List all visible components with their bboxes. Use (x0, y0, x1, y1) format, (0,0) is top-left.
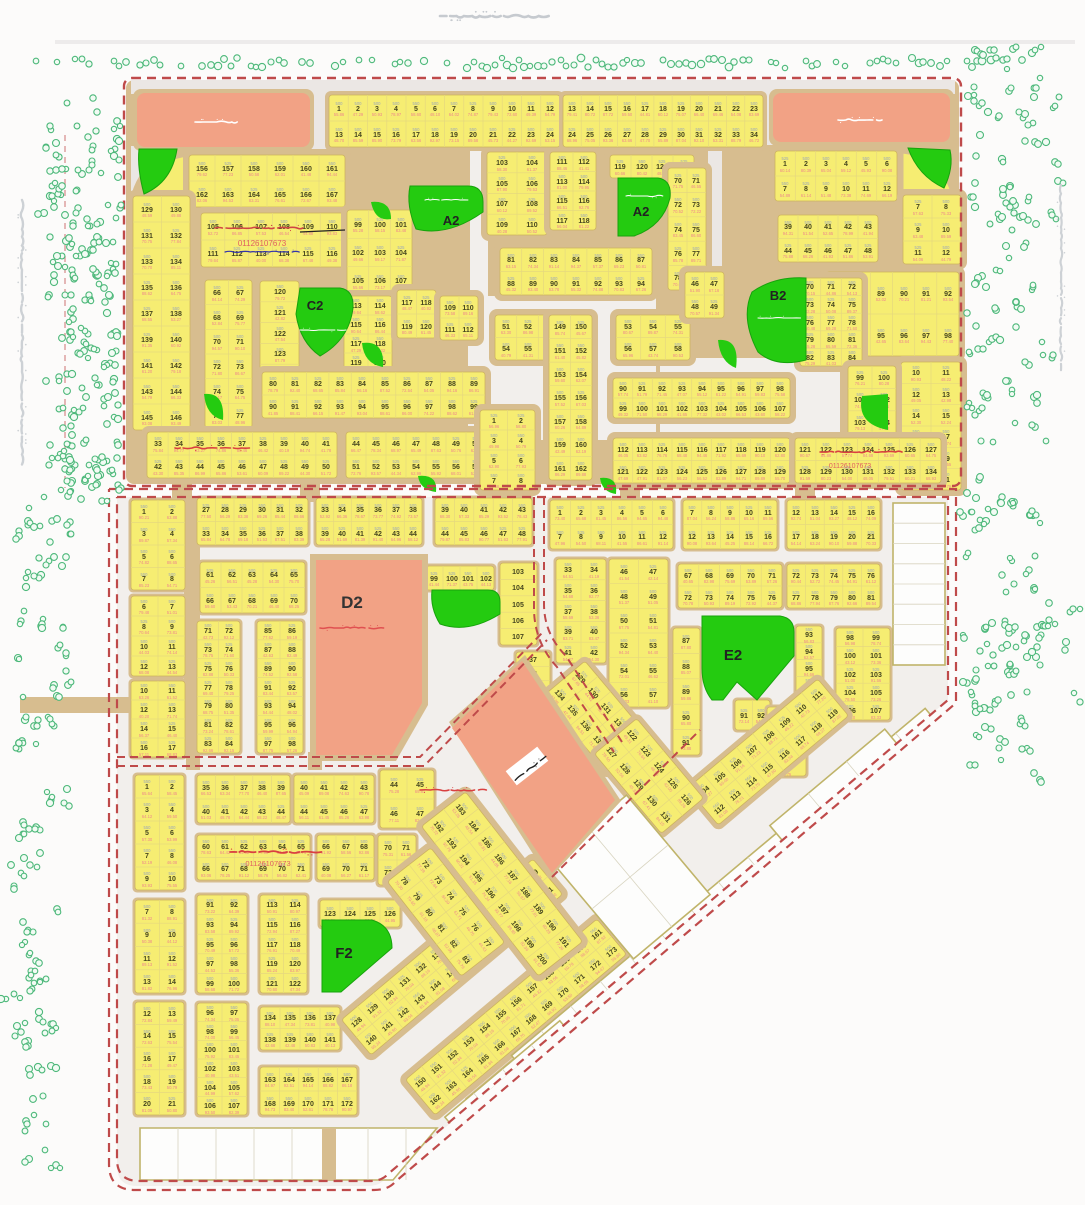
svg-text:45.25: 45.25 (725, 541, 736, 546)
svg-text:82.49: 82.49 (287, 653, 298, 658)
svg-text:68.29: 68.29 (657, 412, 668, 417)
svg-text:65.49: 65.49 (411, 448, 422, 453)
svg-text:128: 128 (754, 469, 766, 476)
svg-text:59.99: 59.99 (263, 729, 274, 734)
svg-text:81.21: 81.21 (921, 297, 932, 302)
svg-text:68.97: 68.97 (391, 448, 402, 453)
svg-text:81: 81 (848, 337, 856, 344)
svg-text:89.87: 89.87 (139, 538, 150, 543)
svg-text:125: 125 (364, 911, 376, 918)
svg-text:68.65: 68.65 (313, 388, 324, 393)
svg-text:91.35: 91.35 (142, 343, 153, 348)
svg-text:66.47: 66.47 (351, 448, 362, 453)
svg-text:51.72: 51.72 (321, 471, 332, 476)
svg-text:40.00: 40.00 (256, 258, 267, 263)
svg-text:41.31: 41.31 (523, 353, 534, 358)
svg-text:87: 87 (425, 381, 433, 388)
svg-text:41.54: 41.54 (619, 576, 630, 581)
svg-text:C2: C2 (307, 298, 324, 313)
svg-text:42: 42 (844, 224, 852, 231)
svg-text:94.46: 94.46 (697, 453, 708, 458)
svg-text:56.82: 56.82 (277, 873, 288, 878)
svg-text:4: 4 (170, 807, 174, 814)
svg-text:46: 46 (620, 569, 628, 576)
svg-text:77: 77 (692, 251, 700, 258)
svg-text:E2: E2 (724, 647, 742, 664)
svg-text:81.07: 81.07 (657, 476, 668, 481)
svg-text:54: 54 (502, 346, 510, 353)
svg-text:54: 54 (412, 464, 420, 471)
svg-text:94.65: 94.65 (637, 516, 648, 521)
svg-text:91.34: 91.34 (709, 311, 720, 316)
svg-text:89.08: 89.08 (319, 791, 330, 796)
svg-text:52.19: 52.19 (142, 860, 153, 865)
svg-text:89.54: 89.54 (866, 601, 877, 606)
svg-text:A2: A2 (443, 213, 460, 228)
svg-text:94.44: 94.44 (327, 172, 338, 177)
svg-text:51: 51 (352, 464, 360, 471)
svg-text:44.79: 44.79 (941, 257, 952, 262)
svg-text:48.70: 48.70 (334, 138, 345, 143)
svg-text:91.92: 91.92 (321, 850, 332, 855)
svg-text:84.91: 84.91 (847, 579, 858, 584)
svg-text:42.49: 42.49 (555, 449, 566, 454)
svg-text:28: 28 (221, 507, 229, 514)
svg-text:150: 150 (575, 324, 587, 331)
svg-text:13: 13 (168, 1011, 176, 1018)
svg-text:119: 119 (614, 164, 625, 171)
svg-text:56: 56 (452, 464, 460, 471)
svg-text:66.53: 66.53 (201, 791, 212, 796)
svg-text:84.14: 84.14 (212, 297, 223, 302)
svg-text:122: 122 (636, 469, 648, 476)
svg-text:80.67: 80.67 (623, 330, 634, 335)
svg-text:52.72: 52.72 (208, 231, 219, 236)
svg-text:29: 29 (239, 507, 247, 514)
svg-text:106: 106 (374, 278, 386, 285)
svg-text:60.12: 60.12 (658, 112, 669, 117)
svg-text:48.02: 48.02 (287, 710, 298, 715)
svg-text:45.28: 45.28 (247, 579, 258, 584)
svg-text:47: 47 (416, 811, 424, 818)
svg-text:68.86: 68.86 (791, 601, 802, 606)
svg-text:30: 30 (258, 507, 266, 514)
svg-text:57.72: 57.72 (229, 948, 240, 953)
svg-text:51.03: 51.03 (201, 815, 212, 820)
svg-text:40.08: 40.08 (321, 873, 332, 878)
svg-text:93: 93 (206, 922, 214, 929)
svg-text:58.15: 58.15 (375, 228, 386, 233)
svg-text:50.81: 50.81 (636, 264, 647, 269)
svg-text:64.42: 64.42 (220, 850, 231, 855)
svg-text:88.10: 88.10 (265, 1022, 276, 1027)
svg-text:86.44: 86.44 (375, 329, 386, 334)
svg-text:85.07: 85.07 (681, 670, 692, 675)
svg-text:86.91: 86.91 (469, 388, 480, 393)
svg-text:57.26: 57.26 (287, 748, 298, 753)
svg-text:73: 73 (236, 364, 244, 371)
svg-text:66.19: 66.19 (882, 193, 893, 198)
svg-text:50.91: 50.91 (267, 909, 278, 914)
svg-text:20: 20 (143, 1101, 151, 1108)
svg-text:78.79: 78.79 (268, 388, 279, 393)
svg-text:58.12: 58.12 (408, 537, 419, 542)
svg-text:82: 82 (225, 722, 233, 729)
svg-text:91.14: 91.14 (549, 264, 560, 269)
svg-text:71.74: 71.74 (167, 714, 178, 719)
svg-text:46.62: 46.62 (648, 674, 659, 679)
svg-text:10: 10 (912, 370, 920, 377)
svg-text:45.82: 45.82 (576, 355, 587, 360)
svg-text:46.05: 46.05 (618, 453, 629, 458)
svg-text:40.20: 40.20 (139, 714, 150, 719)
svg-text:70.75: 70.75 (142, 239, 153, 244)
svg-text:54.00: 54.00 (842, 476, 853, 481)
svg-text:79.25: 79.25 (224, 691, 235, 696)
svg-text:67.75: 67.75 (619, 625, 630, 630)
svg-text:56.16: 56.16 (357, 388, 368, 393)
svg-text:65: 65 (290, 572, 298, 579)
svg-text:127: 127 (735, 469, 747, 476)
svg-text:68.93: 68.93 (926, 476, 937, 481)
svg-text:58.56: 58.56 (341, 850, 352, 855)
svg-text:9: 9 (145, 876, 149, 883)
svg-text:85.90: 85.90 (372, 138, 383, 143)
svg-text:79.48: 79.48 (139, 610, 150, 615)
svg-text:93.49: 93.49 (171, 421, 182, 426)
svg-text:54.08: 54.08 (731, 112, 742, 117)
svg-text:51.86: 51.86 (843, 254, 854, 259)
svg-text:73.58: 73.58 (445, 311, 456, 316)
svg-text:89.58: 89.58 (468, 138, 479, 143)
svg-text:49: 49 (452, 441, 460, 448)
svg-text:75.58: 75.58 (775, 392, 786, 397)
svg-text:47: 47 (259, 464, 267, 471)
svg-text:82.39: 82.39 (229, 1110, 240, 1115)
svg-text:59.60: 59.60 (205, 604, 216, 609)
svg-text:78.78: 78.78 (323, 1107, 334, 1112)
svg-text:12: 12 (942, 250, 950, 257)
svg-text:71: 71 (236, 339, 244, 346)
svg-text:71: 71 (827, 284, 835, 291)
svg-text:114: 114 (289, 902, 300, 909)
svg-text:126: 126 (384, 911, 396, 918)
svg-text:93.40: 93.40 (528, 287, 539, 292)
svg-text:41.41: 41.41 (579, 166, 590, 171)
svg-text:71.28: 71.28 (142, 1063, 153, 1068)
svg-text:17: 17 (168, 1056, 176, 1063)
svg-text:46.55: 46.55 (691, 184, 702, 189)
svg-text:134: 134 (264, 1015, 276, 1022)
svg-text:11: 11 (638, 534, 646, 541)
svg-text:108: 108 (526, 201, 538, 208)
svg-text:59.88: 59.88 (847, 541, 858, 546)
svg-text:65.84: 65.84 (201, 537, 212, 542)
svg-text:49: 49 (710, 304, 718, 311)
svg-text:44.37: 44.37 (767, 601, 778, 606)
svg-text:73.38: 73.38 (841, 193, 852, 198)
svg-text:124: 124 (344, 911, 356, 918)
svg-text:37: 37 (238, 441, 246, 448)
svg-text:20: 20 (848, 534, 856, 541)
svg-text:92.10: 92.10 (694, 138, 705, 143)
svg-text:56.45: 56.45 (229, 1035, 240, 1040)
svg-text:91: 91 (291, 404, 299, 411)
svg-text:54.81: 54.81 (648, 625, 659, 630)
svg-text:74.86: 74.86 (216, 448, 227, 453)
svg-text:43: 43 (175, 464, 183, 471)
svg-text:68.30: 68.30 (440, 514, 451, 519)
svg-text:94.43: 94.43 (921, 339, 932, 344)
svg-text:74.63: 74.63 (339, 791, 350, 796)
svg-text:115: 115 (556, 198, 567, 205)
svg-text:77: 77 (236, 413, 244, 420)
svg-text:41.03: 41.03 (826, 361, 837, 366)
svg-text:70.57: 70.57 (690, 311, 701, 316)
svg-text:44: 44 (352, 441, 360, 448)
svg-text:8: 8 (804, 186, 808, 193)
svg-text:7: 7 (142, 576, 146, 583)
svg-text:39: 39 (784, 224, 792, 231)
svg-text:54.05: 54.05 (424, 388, 435, 393)
svg-text:73: 73 (692, 202, 700, 209)
svg-text:75.84: 75.84 (153, 448, 164, 453)
svg-text:68.01: 68.01 (451, 471, 462, 476)
svg-text:89: 89 (470, 381, 478, 388)
svg-text:75.54: 75.54 (167, 1040, 178, 1045)
svg-text:68.08: 68.08 (139, 670, 150, 675)
svg-text:16: 16 (140, 745, 148, 752)
svg-text:73.17: 73.17 (375, 285, 386, 290)
svg-text:56: 56 (624, 346, 632, 353)
svg-text:70.21: 70.21 (899, 297, 910, 302)
svg-text:81.08: 81.08 (142, 1108, 153, 1113)
svg-text:56.27: 56.27 (341, 873, 352, 878)
svg-text:81.39: 81.39 (355, 537, 366, 542)
svg-text:89.16: 89.16 (463, 311, 474, 316)
svg-text:90.08: 90.08 (687, 541, 698, 546)
svg-text:61: 61 (206, 572, 214, 579)
svg-text:73: 73 (806, 302, 814, 309)
svg-text:120: 120 (636, 164, 648, 171)
svg-text:120: 120 (274, 289, 286, 296)
svg-text:94.57: 94.57 (212, 346, 223, 351)
svg-text:71.45: 71.45 (657, 392, 668, 397)
svg-text:66.15: 66.15 (313, 411, 324, 416)
svg-text:3: 3 (145, 807, 149, 814)
svg-text:44.27: 44.27 (507, 138, 518, 143)
svg-text:55.70: 55.70 (775, 476, 786, 481)
svg-text:94.37: 94.37 (571, 264, 582, 269)
svg-text:59.83: 59.83 (755, 392, 766, 397)
svg-text:49.47: 49.47 (167, 1063, 178, 1068)
svg-text:97: 97 (264, 741, 272, 748)
svg-text:92.15: 92.15 (224, 748, 235, 753)
svg-text:104: 104 (526, 160, 538, 167)
svg-text:78.25: 78.25 (220, 873, 231, 878)
svg-text:55.92: 55.92 (431, 471, 442, 476)
svg-text:98: 98 (448, 404, 456, 411)
svg-text:46: 46 (392, 441, 400, 448)
svg-text:97: 97 (230, 1010, 238, 1017)
svg-text:78.61: 78.61 (224, 729, 235, 734)
svg-text:106: 106 (204, 1103, 216, 1110)
svg-text:63.82: 63.82 (637, 453, 648, 458)
svg-text:41: 41 (322, 441, 330, 448)
svg-text:72: 72 (213, 364, 221, 371)
svg-text:59.86: 59.86 (681, 696, 692, 701)
svg-text:87.65: 87.65 (276, 791, 287, 796)
svg-text:53.15: 53.15 (545, 138, 556, 143)
svg-text:64.39: 64.39 (229, 909, 240, 914)
svg-text:112: 112 (578, 159, 589, 166)
svg-text:70.78: 70.78 (683, 601, 694, 606)
svg-text:134: 134 (925, 469, 937, 476)
svg-text:89.56: 89.56 (763, 516, 774, 521)
svg-text:107: 107 (496, 201, 508, 208)
svg-text:45: 45 (416, 782, 424, 789)
svg-text:1: 1 (783, 161, 787, 168)
svg-text:64.78: 64.78 (220, 537, 231, 542)
svg-text:50.93: 50.93 (372, 112, 383, 117)
svg-text:72.36: 72.36 (847, 344, 858, 349)
svg-text:75.05: 75.05 (585, 138, 596, 143)
svg-text:55.89: 55.89 (658, 138, 669, 143)
svg-text:76: 76 (674, 251, 682, 258)
svg-text:69.40: 69.40 (203, 691, 214, 696)
svg-text:48: 48 (280, 464, 288, 471)
svg-text:77.94: 77.94 (810, 601, 821, 606)
svg-text:77.93: 77.93 (516, 464, 527, 469)
svg-text:21: 21 (168, 1101, 176, 1108)
svg-text:33: 33 (564, 567, 572, 574)
svg-text:116: 116 (289, 922, 300, 929)
svg-text:89.92: 89.92 (229, 929, 240, 934)
svg-text:7: 7 (145, 853, 149, 860)
svg-text:41.44: 41.44 (429, 582, 440, 587)
svg-text:62.19: 62.19 (576, 449, 587, 454)
svg-text:63.88: 63.88 (167, 515, 178, 520)
svg-text:129: 129 (820, 469, 832, 476)
svg-text:42.68: 42.68 (265, 1043, 276, 1048)
svg-text:79.62: 79.62 (197, 172, 208, 177)
svg-text:104: 104 (844, 690, 856, 697)
svg-text:51: 51 (649, 618, 657, 625)
svg-text:40: 40 (460, 507, 468, 514)
svg-text:74.69: 74.69 (861, 193, 872, 198)
svg-text:43.12: 43.12 (845, 660, 856, 665)
svg-text:45.26: 45.26 (205, 579, 216, 584)
svg-text:87: 87 (682, 638, 690, 645)
svg-text:48: 48 (691, 304, 699, 311)
svg-text:89: 89 (682, 689, 690, 696)
svg-text:88.41: 88.41 (290, 411, 301, 416)
svg-text:42.98: 42.98 (941, 398, 952, 403)
svg-text:78.43: 78.43 (517, 514, 528, 519)
svg-text:63.30: 63.30 (501, 330, 512, 335)
svg-text:51.69: 51.69 (337, 537, 348, 542)
svg-text:60.21: 60.21 (905, 476, 916, 481)
svg-text:115: 115 (302, 251, 313, 258)
svg-text:67.16: 67.16 (709, 288, 720, 293)
svg-text:92.97: 92.97 (430, 138, 441, 143)
svg-text:12: 12 (688, 534, 696, 541)
svg-text:121: 121 (617, 469, 629, 476)
svg-text:46: 46 (691, 281, 699, 288)
svg-text:14: 14 (168, 979, 176, 986)
svg-text:10: 10 (942, 227, 950, 234)
svg-text:93: 93 (264, 703, 272, 710)
svg-text:56.11: 56.11 (299, 815, 310, 820)
svg-text:66.72: 66.72 (763, 541, 774, 546)
svg-text:85.26: 85.26 (339, 815, 350, 820)
svg-text:54.50: 54.50 (576, 541, 587, 546)
svg-text:92.40: 92.40 (290, 388, 301, 393)
svg-text:75.69: 75.69 (725, 579, 736, 584)
svg-text:44.54: 44.54 (167, 670, 178, 675)
svg-text:132: 132 (883, 469, 895, 476)
svg-text:46.40: 46.40 (269, 604, 280, 609)
svg-text:72.84: 72.84 (142, 1018, 153, 1023)
svg-text:63.48: 63.48 (913, 234, 924, 239)
svg-text:94.48: 94.48 (658, 516, 669, 521)
svg-text:92.66: 92.66 (203, 748, 214, 753)
svg-text:90.67: 90.67 (800, 453, 811, 458)
svg-text:67: 67 (236, 290, 244, 297)
svg-text:64.75: 64.75 (171, 291, 182, 296)
svg-text:53.78: 53.78 (549, 287, 560, 292)
svg-text:75.28: 75.28 (389, 789, 400, 794)
svg-text:93.08: 93.08 (142, 421, 153, 426)
svg-text:65.69: 65.69 (736, 453, 747, 458)
svg-text:85.29: 85.29 (479, 514, 490, 519)
svg-text:94: 94 (358, 404, 366, 411)
svg-text:51.04: 51.04 (810, 516, 821, 521)
svg-text:88.62: 88.62 (447, 411, 458, 416)
svg-text:74.22: 74.22 (424, 411, 435, 416)
svg-text:98: 98 (288, 741, 296, 748)
svg-text:91.12: 91.12 (239, 873, 250, 878)
svg-text:83: 83 (336, 381, 344, 388)
svg-text:41.48: 41.48 (301, 172, 312, 177)
svg-text:42: 42 (590, 650, 598, 657)
svg-text:83.97: 83.97 (290, 968, 301, 973)
svg-text:58.62: 58.62 (375, 310, 386, 315)
svg-text:61.14: 61.14 (801, 193, 812, 198)
svg-text:71: 71 (402, 845, 410, 852)
svg-text:64.89: 64.89 (576, 425, 587, 430)
svg-text:79: 79 (806, 337, 814, 344)
svg-text:60.26: 60.26 (555, 425, 566, 430)
svg-text:76.61: 76.61 (275, 198, 286, 203)
svg-text:44.81: 44.81 (640, 112, 651, 117)
svg-text:56.29: 56.29 (220, 514, 231, 519)
svg-text:61.12: 61.12 (866, 579, 877, 584)
svg-text:73.57: 73.57 (408, 514, 419, 519)
svg-text:54.13: 54.13 (847, 291, 858, 296)
svg-text:93.69: 93.69 (884, 453, 895, 458)
svg-text:73.26: 73.26 (871, 697, 882, 702)
svg-text:63.26: 63.26 (139, 695, 150, 700)
svg-text:74.52: 74.52 (263, 672, 274, 677)
svg-text:86.99: 86.99 (195, 471, 206, 476)
svg-text:77.11: 77.11 (389, 818, 400, 823)
svg-text:61.17: 61.17 (359, 873, 370, 878)
svg-text:90: 90 (269, 404, 277, 411)
svg-text:92.76: 92.76 (579, 205, 590, 210)
svg-text:86.60: 86.60 (691, 233, 702, 238)
svg-text:51.35: 51.35 (224, 710, 235, 715)
